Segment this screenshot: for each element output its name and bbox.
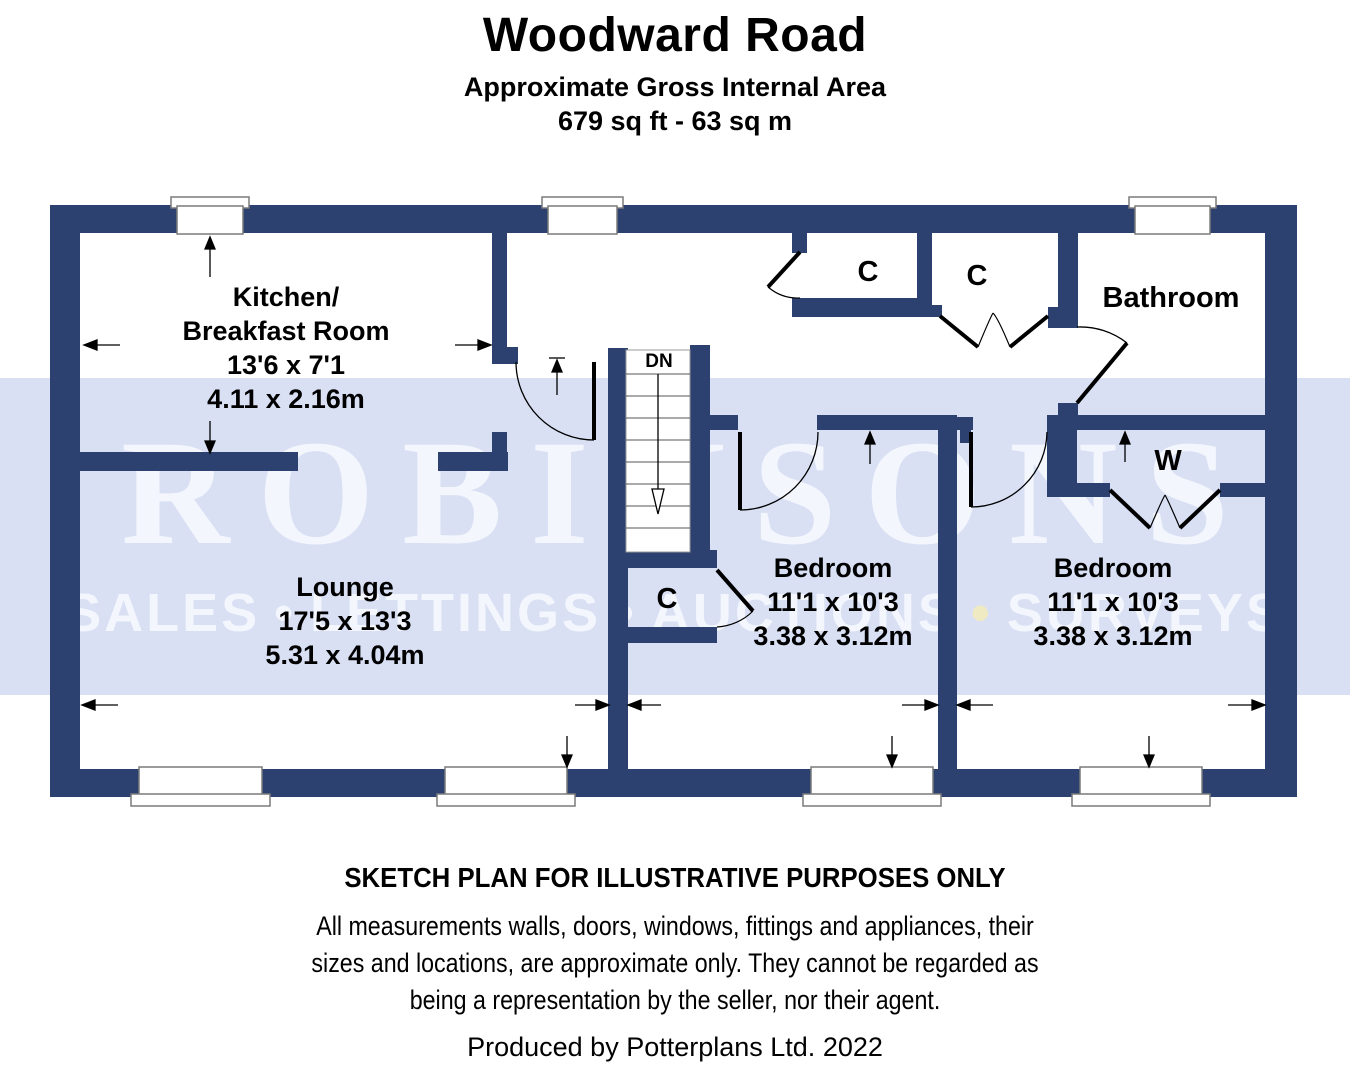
room-label-closet-hall-left: C xyxy=(858,255,879,289)
room-size-metric: 5.31 x 4.04m xyxy=(265,638,424,672)
window xyxy=(171,197,249,234)
room-label-lounge: Lounge 17'5 x 13'3 5.31 x 4.04m xyxy=(265,570,424,672)
room-name: Kitchen/ xyxy=(182,280,389,314)
door-closet-hall-right-bifold xyxy=(940,313,1048,347)
door-bedroom2 xyxy=(971,432,1047,507)
room-size-imperial: 11'1 x 10'3 xyxy=(753,585,912,619)
room-size-metric: 3.38 x 3.12m xyxy=(1033,619,1192,653)
door-closet-understairs xyxy=(717,570,753,627)
room-label-closet-hall-right: C xyxy=(967,259,988,293)
room-label-closet-understairs: C xyxy=(657,582,678,616)
room-label-bathroom: Bathroom xyxy=(1103,281,1240,315)
room-name: Lounge xyxy=(265,570,424,604)
room-name: Bedroom xyxy=(753,551,912,585)
room-label-bedroom1: Bedroom 11'1 x 10'3 3.38 x 3.12m xyxy=(753,551,912,653)
stairs-down-label: DN xyxy=(645,352,672,372)
room-size-imperial: 11'1 x 10'3 xyxy=(1033,585,1192,619)
door-kitchen xyxy=(516,362,594,440)
door-closet-hall-left xyxy=(768,252,800,298)
room-size-metric: 4.11 x 2.16m xyxy=(182,382,389,416)
door-wardrobe-bifold xyxy=(1110,490,1220,528)
room-name: Bedroom xyxy=(1033,551,1192,585)
door-bathroom xyxy=(1077,327,1127,403)
floorplan-drawing xyxy=(0,0,1350,1080)
room-label-bedroom2: Bedroom 11'1 x 10'3 3.38 x 3.12m xyxy=(1033,551,1192,653)
window xyxy=(1129,197,1216,234)
room-size-metric: 3.38 x 3.12m xyxy=(753,619,912,653)
window xyxy=(131,767,270,806)
floorplan-page: { "header": { "title": "Woodward Road", … xyxy=(0,0,1350,1080)
room-name: Breakfast Room xyxy=(182,314,389,348)
door-bedroom1 xyxy=(740,432,818,510)
room-label-kitchen: Kitchen/ Breakfast Room 13'6 x 7'1 4.11 … xyxy=(182,280,389,416)
window xyxy=(542,197,623,234)
room-size-imperial: 13'6 x 7'1 xyxy=(182,348,389,382)
window xyxy=(437,767,575,806)
room-label-wardrobe: W xyxy=(1154,444,1181,478)
window xyxy=(803,767,941,806)
staircase xyxy=(626,350,690,552)
room-size-imperial: 17'5 x 13'3 xyxy=(265,604,424,638)
window xyxy=(1072,767,1210,806)
